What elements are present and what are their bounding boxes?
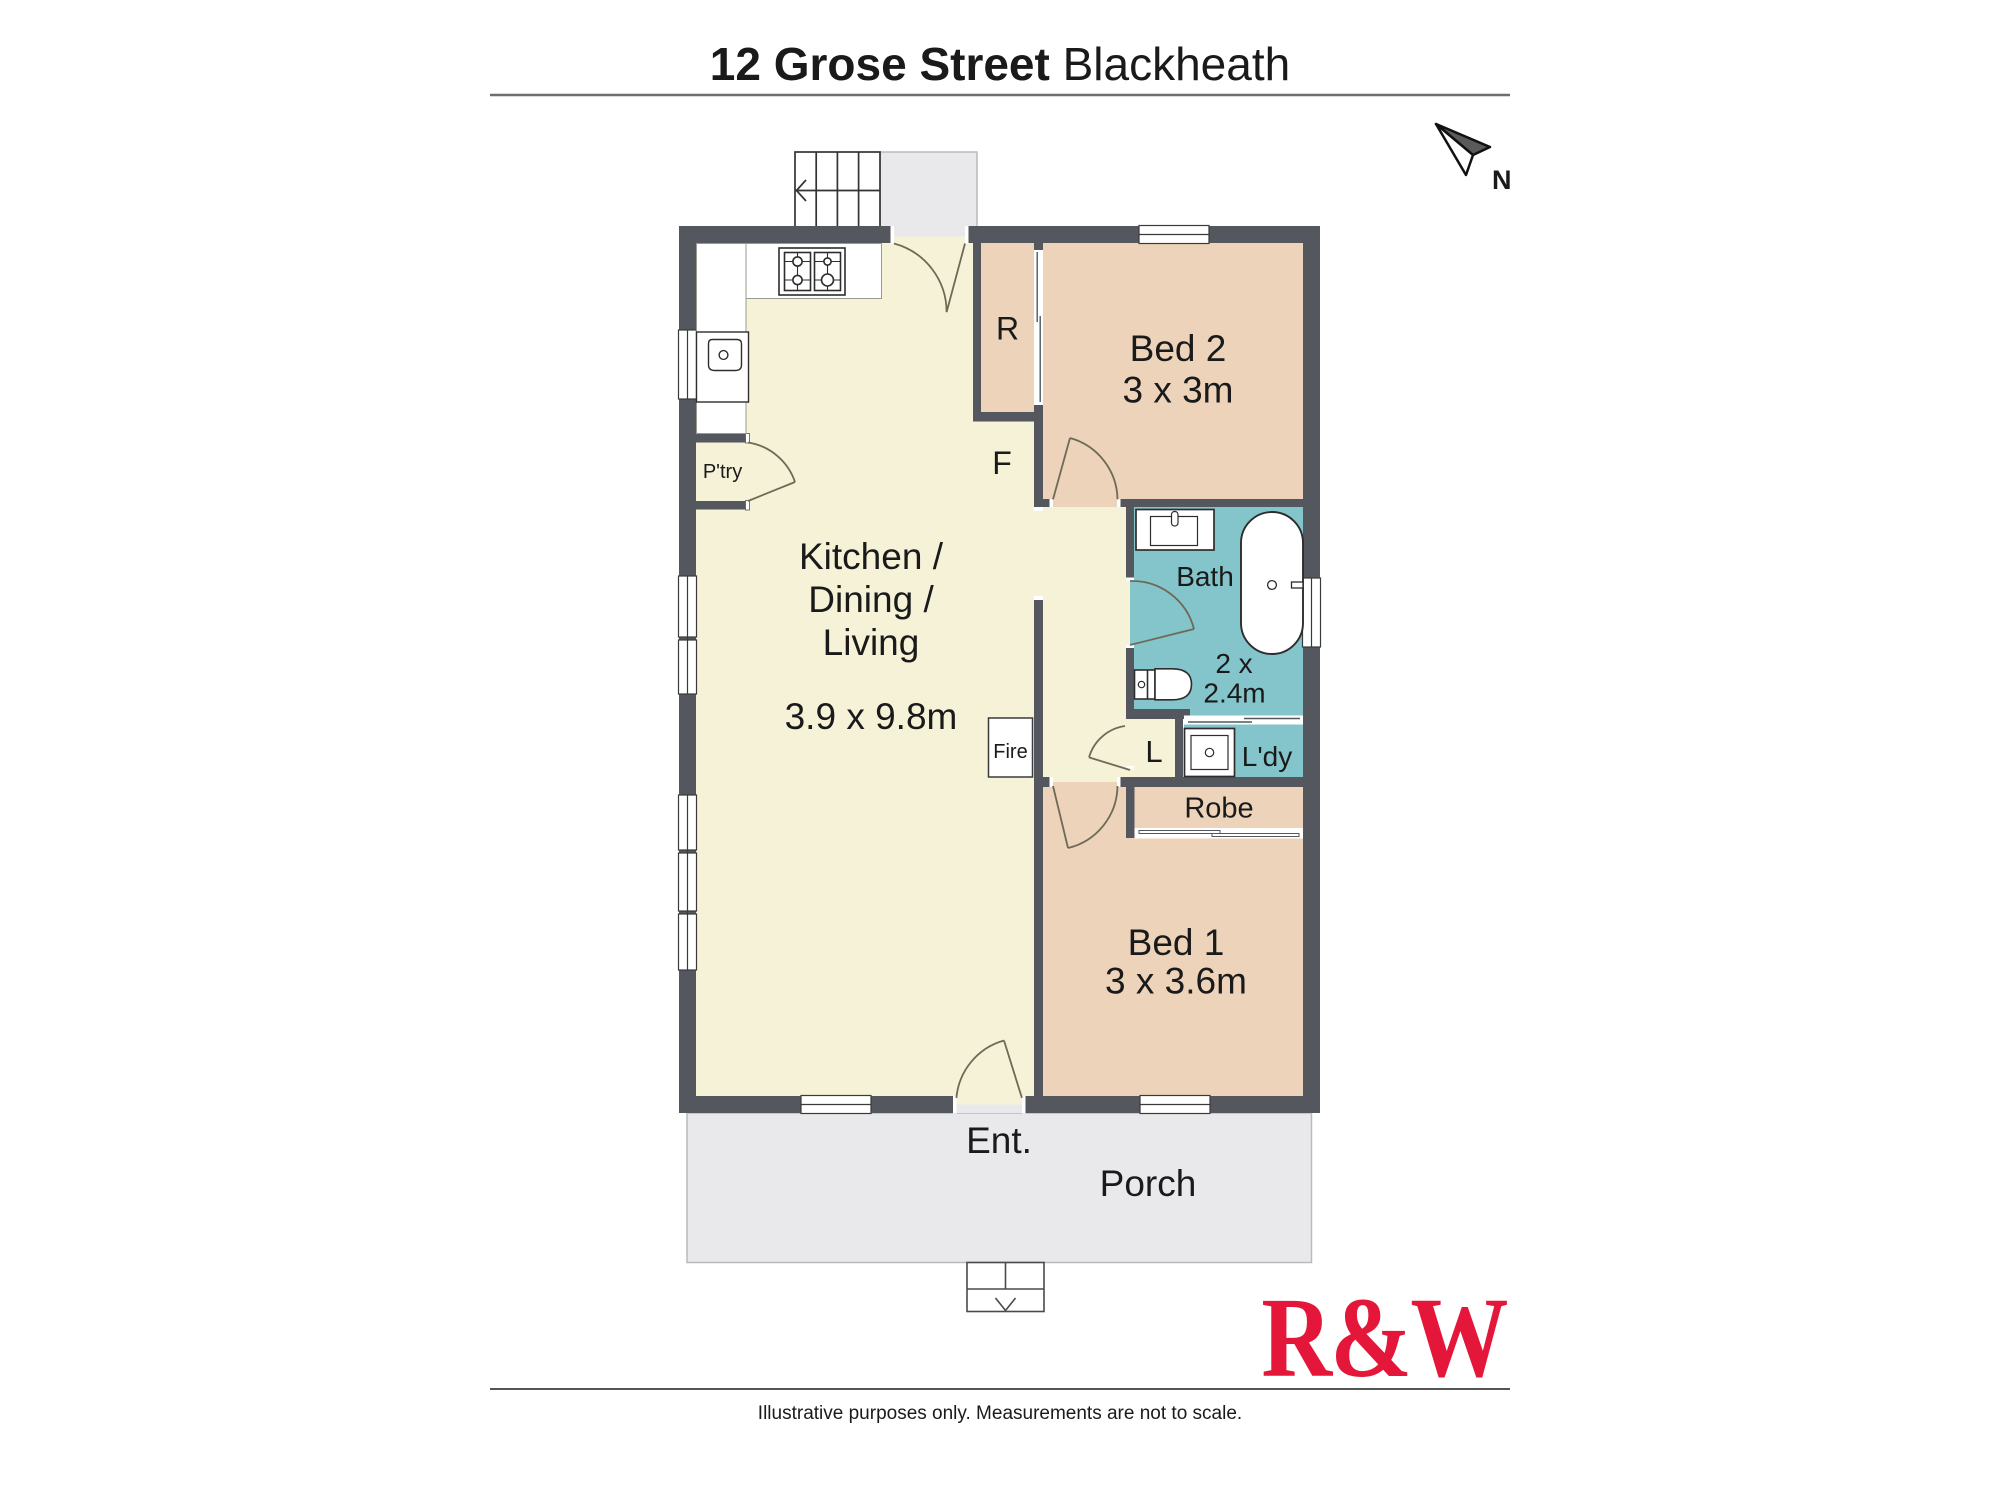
svg-text:R&W: R&W [1261, 1274, 1507, 1401]
svg-text:F: F [992, 445, 1012, 481]
svg-text:Robe: Robe [1184, 793, 1253, 825]
svg-text:Fire: Fire [993, 741, 1027, 763]
svg-text:Living: Living [823, 622, 920, 663]
svg-text:Bed 1: Bed 1 [1128, 922, 1225, 963]
svg-text:3 x 3.6m: 3 x 3.6m [1105, 961, 1247, 1002]
svg-text:Porch: Porch [1100, 1163, 1197, 1204]
svg-text:P'try: P'try [703, 461, 742, 483]
svg-text:12 Grose Street Blackheath: 12 Grose Street Blackheath [710, 38, 1290, 90]
svg-text:Kitchen /: Kitchen / [799, 536, 944, 577]
svg-text:2.4m: 2.4m [1203, 678, 1265, 709]
svg-text:Illustrative purposes only. Me: Illustrative purposes only. Measurements… [758, 1403, 1242, 1424]
svg-text:L: L [1145, 734, 1162, 769]
svg-text:3.9 x 9.8m: 3.9 x 9.8m [785, 696, 958, 737]
svg-text:2 x: 2 x [1215, 648, 1252, 679]
svg-text:3 x 3m: 3 x 3m [1122, 370, 1233, 411]
svg-text:Ent.: Ent. [966, 1120, 1032, 1161]
svg-text:L'dy: L'dy [1242, 741, 1293, 772]
svg-text:R: R [996, 311, 1019, 347]
svg-text:Dining /: Dining / [808, 579, 934, 620]
svg-text:N: N [1492, 165, 1512, 195]
svg-text:Bath: Bath [1176, 561, 1234, 592]
svg-text:Bed 2: Bed 2 [1130, 328, 1227, 369]
